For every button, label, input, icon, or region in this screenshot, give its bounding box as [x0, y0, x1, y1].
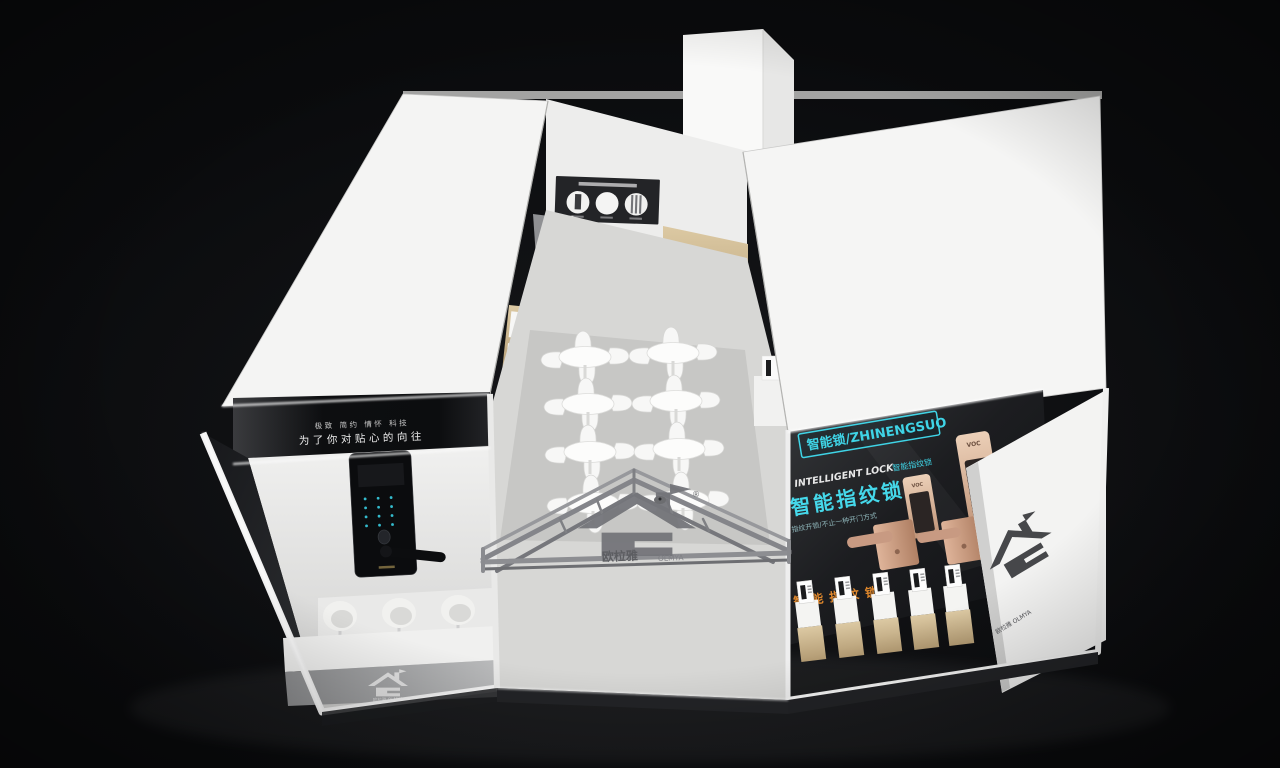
booth-render: 极致 简约 情怀 科技 为了你对贴心的向往	[0, 0, 1280, 768]
scene-svg: 极致 简约 情怀 科技 为了你对贴心的向往	[0, 0, 1280, 768]
vignette	[0, 0, 1280, 768]
